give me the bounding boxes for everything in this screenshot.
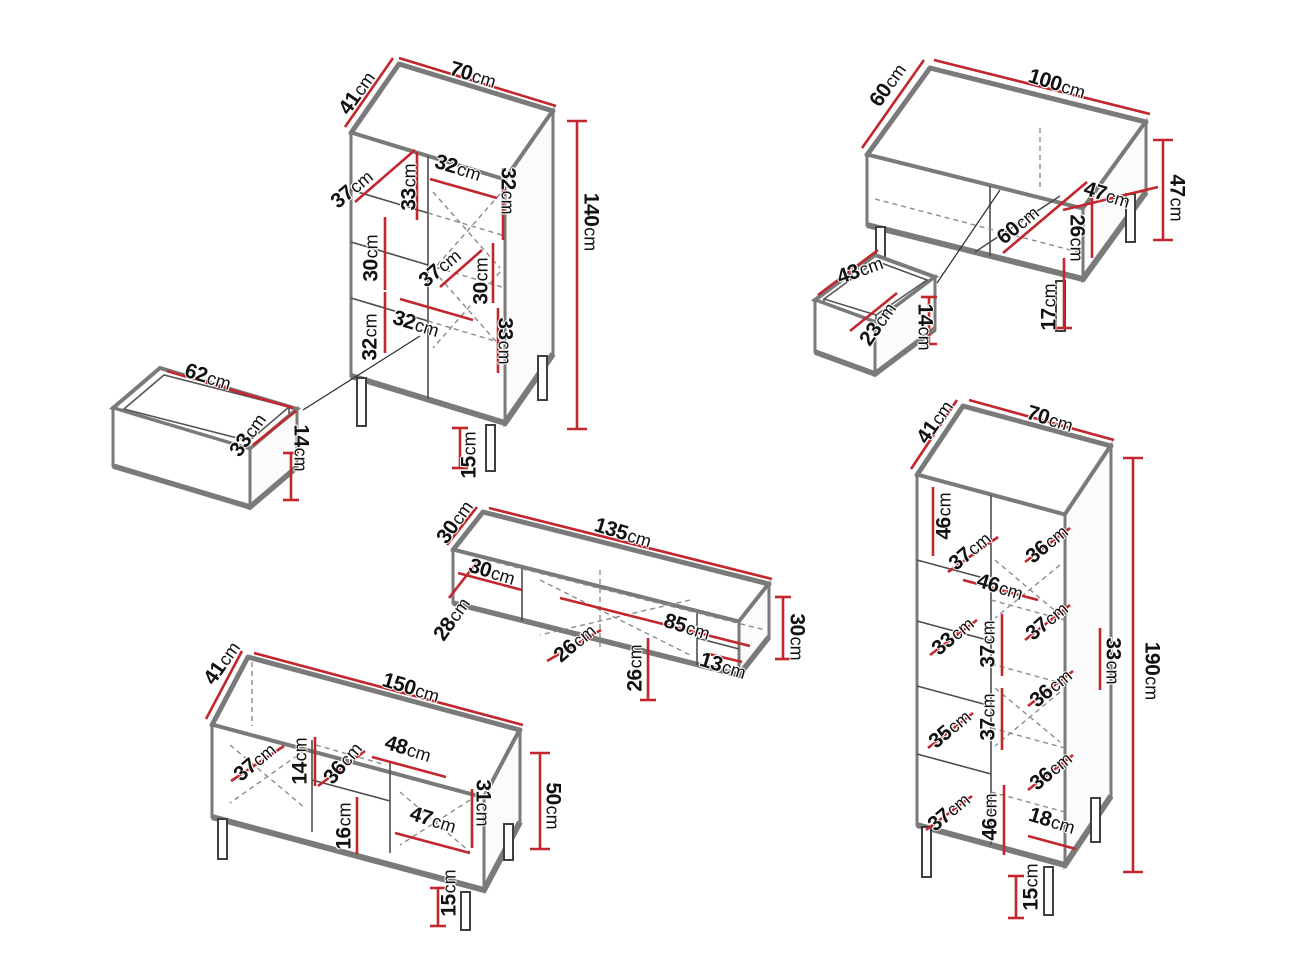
wall-shelf-drawing	[447, 507, 791, 700]
bookcase-drawing	[911, 400, 1143, 918]
drawer-43-drawing	[815, 250, 937, 374]
tv-stand-drawing	[206, 651, 550, 930]
line-art-canvas	[0, 0, 1297, 973]
display-cabinet-drawing	[303, 58, 587, 471]
drawer-62-drawing	[113, 368, 299, 507]
furniture-dimensions-diagram: 41cm70cm140cm37cm33cm32cm32cm30cm37cm30c…	[0, 0, 1297, 973]
